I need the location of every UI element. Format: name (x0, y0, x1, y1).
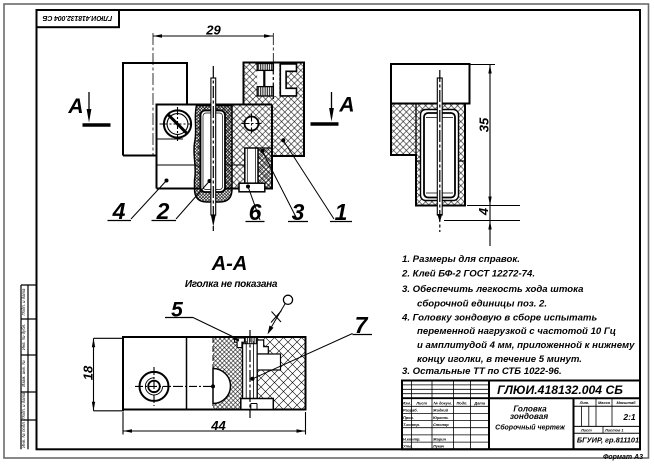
svg-text:Лист: Лист (415, 400, 427, 405)
svg-text:Утв.: Утв. (403, 444, 413, 449)
svg-text:А: А (67, 95, 83, 118)
svg-text:29: 29 (205, 23, 221, 38)
svg-text:4. Головку зондовую в сборе ис: 4. Головку зондовую в сборе испытать (401, 313, 597, 324)
svg-text:Инв. № дубл.: Инв. № дубл. (21, 324, 26, 350)
svg-text:сборочной единицы поз. 2.: сборочной единицы поз. 2. (417, 299, 547, 310)
svg-text:Масса: Масса (598, 400, 611, 405)
svg-text:Иголка не показана: Иголка не показана (185, 279, 278, 290)
svg-text:3. Остальные ТТ по СТБ 1022-96: 3. Остальные ТТ по СТБ 1022-96. (402, 366, 562, 377)
svg-text:Сборочный чертеж: Сборочный чертеж (495, 424, 566, 432)
svg-text:№ докум.: № докум. (433, 400, 451, 405)
svg-text:Пров.: Пров. (403, 415, 414, 420)
svg-text:18: 18 (81, 365, 96, 380)
svg-text:4: 4 (476, 207, 491, 216)
svg-text:35: 35 (477, 117, 492, 132)
svg-text:ГЛЮИ.418132.004 СБ: ГЛЮИ.418132.004 СБ (497, 383, 623, 397)
svg-text:44: 44 (210, 418, 226, 433)
svg-text:3. Обеспечить легкость хода шт: 3. Обеспечить легкость хода штока (402, 284, 584, 295)
svg-text:Изм.: Изм. (402, 400, 411, 405)
svg-text:Столяр: Столяр (433, 422, 449, 427)
svg-text:ГЛЮИ.418132.004 СБ: ГЛЮИ.418132.004 СБ (43, 14, 113, 21)
svg-text:зондовая: зондовая (510, 412, 548, 421)
svg-text:2:1: 2:1 (622, 412, 636, 422)
svg-text:Формат А3: Формат А3 (603, 454, 643, 461)
svg-text:Подп. и дата: Подп. и дата (21, 392, 26, 420)
svg-text:А: А (338, 94, 354, 117)
svg-text:Лукач: Лукач (432, 444, 445, 449)
svg-text:А-А: А-А (211, 253, 248, 275)
svg-text:Разраб.: Разраб. (403, 408, 418, 413)
svg-text:Дата: Дата (473, 400, 485, 405)
svg-text:БГУИР, гр.811101: БГУИР, гр.811101 (577, 436, 639, 445)
svg-text:Т.контр.: Т.контр. (403, 422, 420, 427)
svg-text:Лист: Лист (580, 428, 592, 433)
svg-text:Взам. инв. №: Взам. инв. № (21, 360, 26, 387)
svg-text:Подп.: Подп. (456, 400, 467, 405)
svg-text:Жидкий: Жидкий (432, 408, 449, 413)
svg-text:переменной нагрузкой с частото: переменной нагрузкой с частотой 10 Гц (417, 326, 616, 337)
svg-text:Инв. № подл.: Инв. № подл. (21, 421, 26, 448)
svg-text:и амплитудой 4 мм, приложенной: и амплитудой 4 мм, приложенной к нижнему (417, 340, 635, 351)
svg-text:1. Размеры для справок.: 1. Размеры для справок. (402, 254, 520, 265)
svg-text:Масштаб: Масштаб (616, 400, 636, 405)
svg-text:Юрконь: Юрконь (433, 415, 449, 420)
svg-text:Листов 1: Листов 1 (604, 428, 624, 433)
svg-text:Жарин: Жарин (432, 436, 447, 441)
svg-text:концу иголки, в течение 5 мину: концу иголки, в течение 5 минут. (417, 354, 582, 365)
svg-text:Н.контр.: Н.контр. (403, 436, 421, 441)
svg-text:2. Клей БФ-2 ГОСТ 12272-74.: 2. Клей БФ-2 ГОСТ 12272-74. (401, 269, 535, 280)
svg-text:Лит.: Лит. (579, 400, 590, 405)
svg-text:Подп. и дата: Подп. и дата (21, 288, 26, 316)
